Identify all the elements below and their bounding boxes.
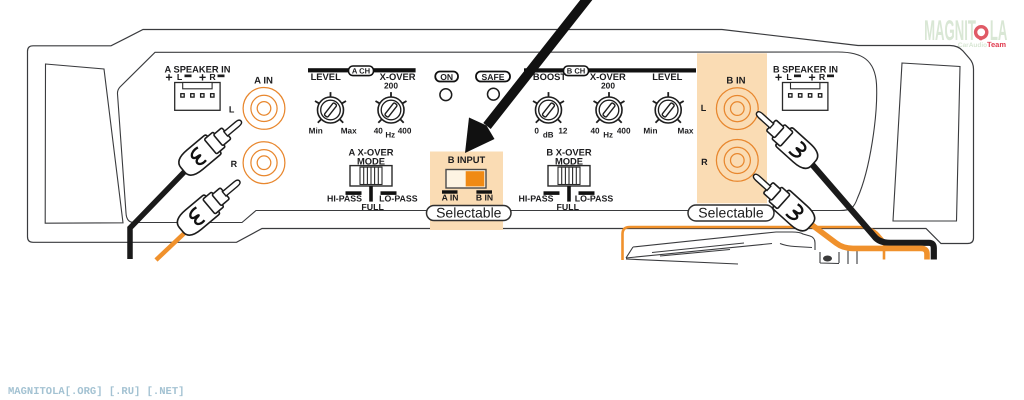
svg-text:L: L (701, 103, 707, 113)
svg-text:Min: Min (309, 126, 323, 135)
svg-text:Team: Team (987, 40, 1006, 49)
svg-text:LEVEL: LEVEL (311, 71, 341, 82)
svg-text:B IN: B IN (476, 192, 493, 202)
svg-text:HI-PASS: HI-PASS (518, 193, 553, 203)
svg-text:SAFE: SAFE (482, 72, 505, 82)
svg-text:A IN: A IN (442, 192, 459, 202)
svg-text:Max: Max (678, 126, 694, 135)
svg-text:dB: dB (543, 131, 554, 140)
svg-text:B INPUT: B INPUT (448, 154, 486, 165)
svg-text:MODE: MODE (357, 155, 385, 166)
svg-text:400: 400 (617, 126, 631, 135)
svg-text:ON: ON (440, 72, 453, 82)
svg-text:FULL: FULL (557, 202, 580, 212)
svg-text:R: R (701, 157, 708, 167)
svg-text:A SPEAKER IN: A SPEAKER IN (165, 63, 231, 74)
svg-text:LEVEL: LEVEL (652, 71, 682, 82)
svg-text:MAGNITOLA[.ORG] [.RU] [.NET]: MAGNITOLA[.ORG] [.RU] [.NET] (8, 386, 184, 398)
svg-text:Selectable: Selectable (436, 204, 502, 220)
svg-text:12: 12 (558, 126, 568, 135)
svg-text:B SPEAKER IN: B SPEAKER IN (773, 63, 838, 74)
svg-text:BOOST: BOOST (533, 71, 567, 82)
svg-text:LO-PASS: LO-PASS (379, 193, 418, 203)
svg-text:40: 40 (374, 126, 384, 135)
svg-text:L: L (229, 105, 235, 115)
svg-text:A CH: A CH (352, 66, 370, 75)
svg-text:HI-PASS: HI-PASS (327, 193, 362, 203)
svg-text:Min: Min (643, 126, 657, 135)
svg-text:200: 200 (384, 81, 398, 91)
svg-text:400: 400 (398, 126, 412, 135)
svg-text:200: 200 (601, 81, 615, 91)
svg-text:Max: Max (341, 126, 357, 135)
svg-text:0: 0 (534, 126, 539, 135)
svg-text:MODE: MODE (555, 155, 583, 166)
svg-text:B IN: B IN (726, 76, 745, 87)
svg-text:FULL: FULL (361, 202, 384, 212)
svg-text:B CH: B CH (567, 66, 586, 75)
svg-text:R: R (231, 159, 238, 169)
svg-text:A IN: A IN (254, 76, 273, 87)
svg-text:40: 40 (590, 126, 600, 135)
svg-text:Selectable: Selectable (698, 205, 764, 221)
svg-text:CarAudio: CarAudio (958, 42, 987, 49)
svg-text:LO-PASS: LO-PASS (575, 193, 614, 203)
svg-text:Hz: Hz (603, 131, 613, 140)
svg-text:Hz: Hz (385, 131, 395, 140)
